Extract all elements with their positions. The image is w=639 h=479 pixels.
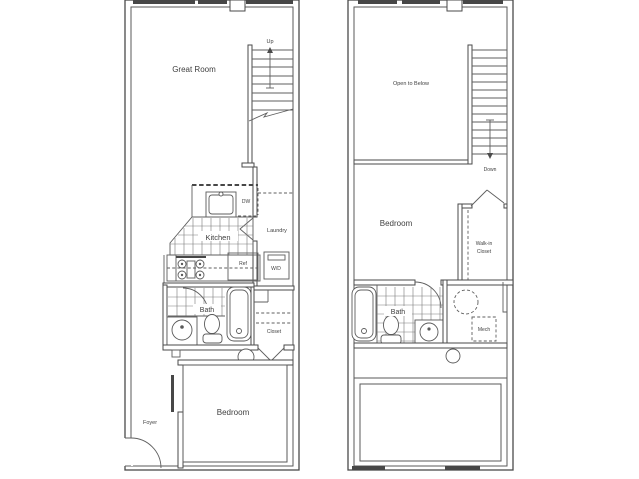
walk-in-closet-door [471,190,504,206]
level2-outer-wall [348,0,513,470]
stair-break-line [249,109,293,121]
window-sill [352,466,385,470]
label-dishwasher: DW [242,199,251,205]
walk-in-closet [458,190,507,282]
laundry-closet [240,163,293,290]
level2-top-windows [358,0,503,11]
label-refrigerator: Ref [239,261,247,267]
vanity-sink-2 [420,323,438,341]
stair-treads-2 [472,50,507,154]
water-heater-circle [454,290,478,314]
kitchen-bath-wall [163,283,254,287]
column-box [230,0,245,11]
pocket-door [171,375,174,412]
stairs-up [248,45,293,167]
floor-plan-level-2: Open to Below Down Bedroom Walk-in Close… [348,0,513,470]
faucet [219,192,223,196]
label-open-to-below: Open to Below [393,81,429,87]
toilet-2 [384,316,399,335]
range-stove [176,257,206,279]
floor-plan-level-1: Up Great Room Laundry W/D [123,0,299,470]
label-up: Up [266,39,273,45]
toilet [205,315,220,334]
closet-door [258,348,284,361]
bottom-room [352,378,507,470]
label-walk-in-2: Closet [477,249,492,255]
label-down: Down [484,167,497,173]
stair-treads [252,50,293,110]
label-mech: Mech [478,327,490,333]
label-washer-dryer: W/D [271,266,281,272]
column-box-2 [447,0,462,11]
entry-door-arc [131,438,161,468]
closet-shelf-lines [256,313,292,323]
level1-top-windows [133,0,293,11]
column-circle-2 [446,349,460,363]
label-closet-1: Closet [267,329,282,335]
open-to-below-area [354,45,472,164]
label-kitchen: Kitchen [205,233,230,242]
toilet-tank [203,334,222,343]
bath-level1 [163,285,294,365]
floor-plan-drawing: Up Great Room Laundry W/D [0,0,639,479]
tub-drain-2 [362,329,367,334]
label-foyer: Foyer [143,420,157,426]
down-arrow-head [487,153,493,159]
tub-drain [237,329,242,334]
label-bedroom-2: Bedroom [380,219,413,228]
level2-inner-wall [354,7,507,466]
label-laundry: Laundry [267,228,287,234]
label-bath-1: Bath [200,307,215,314]
floor-plan-image: Up Great Room Laundry W/D [0,0,639,479]
label-great-room: Great Room [172,65,216,74]
label-bath-2: Bath [391,309,406,316]
entry-door [123,432,161,468]
stairs-down [472,50,507,159]
label-walk-in-1: Walk-in [476,241,493,247]
vanity-sink [172,320,192,340]
bath2-door-arc [415,282,441,308]
laundry-door [240,218,253,240]
window-sill [445,466,480,470]
label-bedroom-1: Bedroom [217,408,250,417]
